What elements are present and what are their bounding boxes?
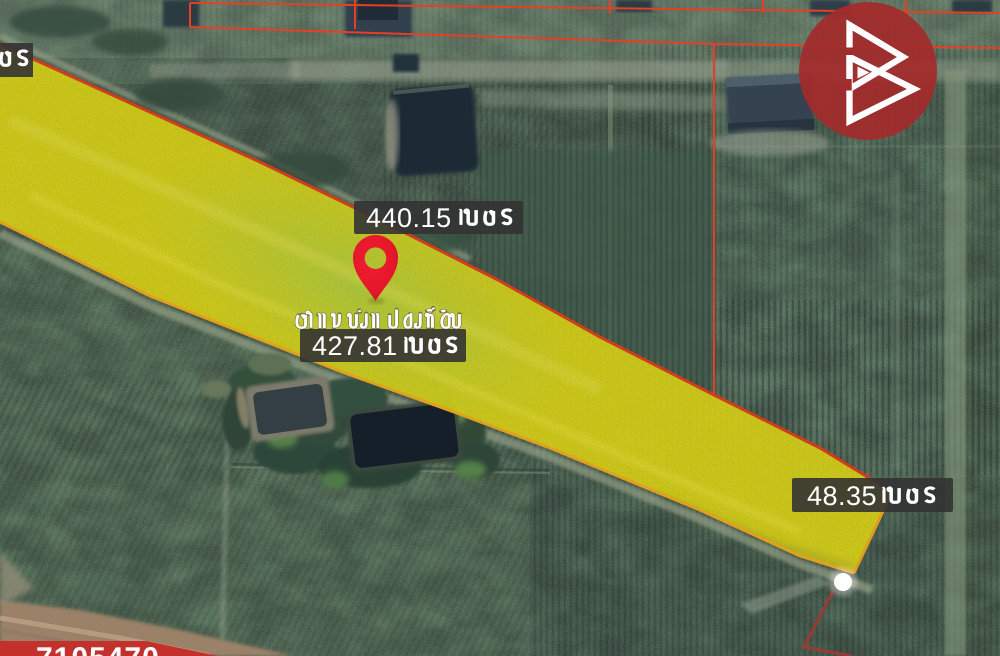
svg-text:48.35: 48.35 [807, 481, 877, 511]
svg-text:440.15: 440.15 [366, 203, 452, 233]
svg-text:427.81: 427.81 [312, 331, 398, 361]
svg-text:7105470: 7105470 [36, 642, 160, 656]
